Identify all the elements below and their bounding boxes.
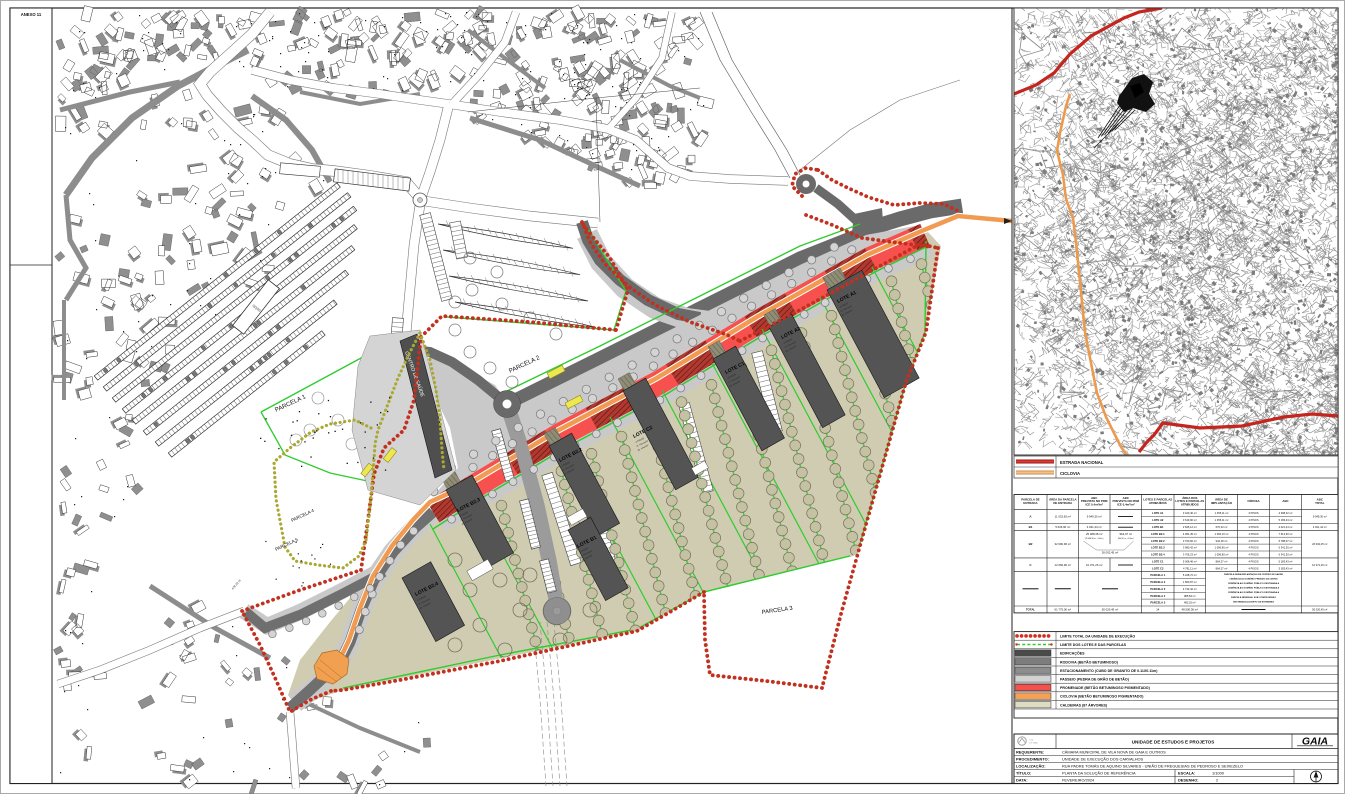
- svg-text:14: 14: [1156, 608, 1160, 612]
- svg-text:LOTE A1: LOTE A1: [1152, 511, 1164, 515]
- svg-text:61 775,00 m²: 61 775,00 m²: [1055, 608, 1072, 612]
- svg-text:482,02 m²: 482,02 m²: [1184, 601, 1196, 605]
- svg-text:2: 2: [1216, 778, 1218, 783]
- svg-text:LOTE C1: LOTE C1: [1152, 559, 1164, 563]
- svg-text:4 PISOS: 4 PISOS: [1248, 525, 1258, 529]
- svg-text:4 PISOS: 4 PISOS: [1248, 559, 1258, 563]
- svg-text:1 455,11 m²: 1 455,11 m²: [1215, 511, 1229, 515]
- svg-text:10 371,26 m²: 10 371,26 m²: [1312, 563, 1327, 567]
- svg-text:4 398,32 m²: 4 398,32 m²: [1279, 511, 1293, 515]
- svg-text:ENTRADA: ENTRADA: [1023, 501, 1038, 505]
- svg-text:EDIFICAÇÕES: EDIFICAÇÕES: [1060, 651, 1085, 656]
- svg-text:LOTE B2.4: LOTE B2.4: [1151, 553, 1165, 557]
- svg-text:DE ENTRADA: DE ENTRADA: [1053, 501, 1073, 505]
- svg-text:25 488,38 m²: 25 488,38 m²: [1086, 532, 1103, 536]
- svg-text:LOTE B1: LOTE B1: [1152, 525, 1164, 529]
- svg-text:26 002,45 m²: 26 002,45 m²: [1312, 542, 1327, 546]
- svg-text:C.M.: C.M.: [1029, 740, 1034, 742]
- svg-text:5 788,07 m²: 5 788,07 m²: [1279, 539, 1293, 543]
- svg-text:6 341,30 m²: 6 341,30 m²: [1279, 553, 1293, 557]
- svg-text:1 455,11 m²: 1 455,11 m²: [1215, 518, 1229, 522]
- svg-text:50 020,45 m²: 50 020,45 m²: [1312, 608, 1327, 612]
- svg-text:10 371,26 m²: 10 371,26 m²: [1086, 563, 1103, 567]
- svg-text:3 706,23 m²: 3 706,23 m²: [1183, 553, 1197, 557]
- svg-text:4 PISOS: 4 PISOS: [1248, 539, 1258, 543]
- svg-text:1 266,10 m²: 1 266,10 m²: [1215, 532, 1229, 536]
- svg-text:5 183,43 m²: 5 183,43 m²: [1279, 566, 1293, 570]
- svg-text:CALDEIRAS (87 ÁRVORES): CALDEIRAS (87 ÁRVORES): [1060, 702, 1108, 707]
- svg-text:FEVEREIRO/2024: FEVEREIRO/2024: [1062, 778, 1095, 783]
- svg-text:4 021,44 m²: 4 021,44 m²: [1313, 525, 1327, 529]
- svg-text:4 PISOS: 4 PISOS: [1248, 532, 1258, 536]
- svg-text:3 420,40 m²: 3 420,40 m²: [1183, 511, 1197, 515]
- svg-text:(25 488,38 m² +1,8/m²): (25 488,38 m² +1,8/m²): [1085, 537, 1104, 540]
- svg-text:5 183,44 m²: 5 183,44 m²: [1279, 518, 1293, 522]
- svg-text:670,23 m²: 670,23 m²: [1216, 525, 1228, 529]
- svg-text:ESTRADA NACIONAL: ESTRADA NACIONAL: [1060, 460, 1104, 465]
- svg-text:PARCELA 2: PARCELA 2: [1150, 580, 1165, 584]
- svg-text:48 500,36 m²: 48 500,36 m²: [1182, 608, 1199, 612]
- svg-text:4 PISOS: 4 PISOS: [1248, 546, 1258, 550]
- svg-text:CEDÊNCIA AO DOMÍNIO PÚBLICO DE: CEDÊNCIA AO DOMÍNIO PÚBLICO DESTINADA A: [1228, 591, 1280, 594]
- svg-text:DESENHO:: DESENHO:: [1178, 778, 1199, 783]
- svg-text:944,18 m²: 944,18 m²: [1216, 539, 1228, 543]
- svg-text:DESTINADA A ACERTO DE ESTREMAS: DESTINADA A ACERTO DE ESTREMAS: [1233, 600, 1274, 603]
- svg-text:9 949,30 m²: 9 949,30 m²: [1313, 515, 1327, 519]
- svg-text:PASSEIO (PEDRA DE GRÃO DE BETÃ: PASSEIO (PEDRA DE GRÃO DE BETÃO): [1060, 677, 1130, 682]
- svg-text:ANEXO 11: ANEXO 11: [21, 12, 42, 17]
- svg-text:4 742,42 m²: 4 742,42 m²: [1183, 587, 1197, 591]
- svg-text:LIMITE DOS LOTES E DAS PARCELA: LIMITE DOS LOTES E DAS PARCELAS: [1060, 643, 1127, 647]
- svg-text:4 781,11 m²: 4 781,11 m²: [1183, 566, 1197, 570]
- svg-text:ESCALA:: ESCALA:: [1178, 771, 1195, 776]
- svg-text:PROMENADE (BETÃO BETUMINOSO PI: PROMENADE (BETÃO BETUMINOSO PIGMENTADO): [1060, 685, 1151, 690]
- svg-text:B1: B1: [1029, 525, 1033, 529]
- svg-text:TOTAL: TOTAL: [1026, 608, 1036, 612]
- svg-text:LIMITE TOTAL DA UNIDADE DE EXE: LIMITE TOTAL DA UNIDADE DE EXECUÇÃO: [1060, 634, 1135, 639]
- svg-text:12 066,96 m²: 12 066,96 m²: [1055, 563, 1072, 567]
- svg-text:PARCELA RESIDUAL SOB COMPROMIS: PARCELA RESIDUAL SOB COMPROMISSO: [1231, 596, 1276, 599]
- svg-text:LOTE C2: LOTE C2: [1152, 566, 1164, 570]
- svg-text:DATA:: DATA:: [1016, 778, 1028, 783]
- svg-text:ICE 0,4m²/m²: ICE 0,4m²/m²: [1085, 503, 1103, 507]
- svg-text:CEDÊNCIA AO DOMÍNIO PRIVADO DA: CEDÊNCIA AO DOMÍNIO PRIVADO DA CMVNG: [1229, 577, 1278, 580]
- svg-text:5 026,90 m²: 5 026,90 m²: [1055, 525, 1070, 529]
- svg-text:CICLOVIA (BETÃO BETUMINOSO PIG: CICLOVIA (BETÃO BETUMINOSO PIGMENTADO): [1060, 694, 1144, 699]
- svg-text:UNIDADE DE EXECUÇÃO DOS CARVAL: UNIDADE DE EXECUÇÃO DOS CARVALHOS: [1062, 757, 1144, 762]
- svg-text:5 328,72 m²: 5 328,72 m²: [1183, 573, 1197, 577]
- svg-text:CEDÊNCIA AO DOMÍNIO PÚBLICO DE: CEDÊNCIA AO DOMÍNIO PÚBLICO DESTINADA A: [1228, 582, 1280, 585]
- svg-text:7 614,60 m²: 7 614,60 m²: [1279, 532, 1293, 536]
- svg-text:4 021,44 m²: 4 021,44 m²: [1087, 525, 1102, 529]
- svg-text:CEDÊNCIA AO DOMÍNIO PÚBLICO DE: CEDÊNCIA AO DOMÍNIO PÚBLICO DESTINADA A: [1228, 587, 1280, 590]
- svg-text:6 341,30 m²: 6 341,30 m²: [1279, 546, 1293, 550]
- svg-text:4 021,44 m²: 4 021,44 m²: [1279, 525, 1293, 529]
- svg-text:32 690,96 m²: 32 690,96 m²: [1055, 542, 1072, 546]
- svg-text:2 845,12 m²: 2 845,12 m²: [1183, 525, 1197, 529]
- svg-text:LOTE B2.3: LOTE B2.3: [1151, 546, 1165, 550]
- svg-text:CÉRCEA: CÉRCEA: [1247, 498, 1260, 503]
- svg-text:5 183,43 m²: 5 183,43 m²: [1279, 559, 1293, 563]
- svg-text:ATRIBUÍDOS: ATRIBUÍDOS: [1181, 502, 1199, 507]
- svg-text:CICLOVIA: CICLOVIA: [1060, 471, 1080, 476]
- svg-text:PROCEDIMENTO:: PROCEDIMENTO:: [1016, 757, 1049, 762]
- svg-text:3 PISOS: 3 PISOS: [1248, 511, 1258, 515]
- svg-text:ESTACIONAMENTO (CUBO DE GRANIT: ESTACIONAMENTO (CUBO DE GRANITO DE 0.11X…: [1060, 669, 1158, 673]
- svg-text:964,07 m²: 964,07 m²: [1120, 532, 1133, 536]
- svg-text:50 020,45 m²: 50 020,45 m²: [1102, 608, 1119, 612]
- svg-text:REQUERENTE:: REQUERENTE:: [1016, 750, 1044, 755]
- svg-text:5 008,46 m²: 5 008,46 m²: [1183, 559, 1197, 563]
- svg-text:PARCELA PARA IMPLANTAÇÃO DE CE: PARCELA PARA IMPLANTAÇÃO DE CENTRO DE SA…: [1224, 573, 1283, 576]
- svg-text:CÂMARA MUNICIPAL DE VILA NOVA: CÂMARA MUNICIPAL DE VILA NOVA DE GAIA E …: [1062, 750, 1166, 755]
- svg-text:TOTAL: TOTAL: [1315, 501, 1325, 505]
- svg-text:RUA PADRE TOMÁS DE AQUINO SILV: RUA PADRE TOMÁS DE AQUINO SILVARES - UNI…: [1062, 764, 1243, 769]
- svg-text:4 PISOS: 4 PISOS: [1248, 553, 1258, 557]
- svg-text:9 949,30 m²: 9 949,30 m²: [1087, 515, 1102, 519]
- svg-text:864,27 m²: 864,27 m²: [1216, 559, 1228, 563]
- svg-text:ICE 0,4m²/m²: ICE 0,4m²/m²: [1117, 503, 1135, 507]
- svg-text:3 700,60 m²: 3 700,60 m²: [1183, 539, 1197, 543]
- svg-text:B2: B2: [1029, 542, 1033, 546]
- svg-text:V.N.GAIA: V.N.GAIA: [1029, 742, 1038, 745]
- svg-text:LOCALIZAÇÃO:: LOCALIZAÇÃO:: [1016, 764, 1046, 769]
- svg-text:1 860,87 m²: 1 860,87 m²: [1183, 580, 1197, 584]
- svg-text:3 619,90 m²: 3 619,90 m²: [1183, 518, 1197, 522]
- svg-text:4 381,45 m²: 4 381,45 m²: [1183, 532, 1197, 536]
- svg-text:IMPLANTAÇÃO: IMPLANTAÇÃO: [1211, 500, 1233, 505]
- svg-text:(964,07 m² +1,8/m²): (964,07 m² +1,8/m²): [1118, 537, 1134, 540]
- svg-text:PARCELA 5: PARCELA 5: [1150, 601, 1165, 605]
- svg-text:3 980,42 m²: 3 980,42 m²: [1183, 546, 1197, 550]
- svg-text:4 PISOS: 4 PISOS: [1248, 518, 1258, 522]
- svg-text:1 096,80 m²: 1 096,80 m²: [1215, 546, 1229, 550]
- svg-text:PLANTA DA SOLUÇÃO DE REFERÊNCI: PLANTA DA SOLUÇÃO DE REFERÊNCIA: [1062, 771, 1136, 776]
- svg-text:1 096,80 m²: 1 096,80 m²: [1215, 553, 1229, 557]
- svg-text:LOTE B2.2: LOTE B2.2: [1151, 539, 1165, 543]
- svg-text:864,27 m²: 864,27 m²: [1216, 566, 1228, 570]
- svg-text:PARCELA 3: PARCELA 3: [1150, 587, 1165, 591]
- svg-text:PARCELA 4: PARCELA 4: [1150, 594, 1165, 598]
- svg-text:ATRIBUÍDOS: ATRIBUÍDOS: [1149, 500, 1167, 505]
- svg-text:11 032,65 m²: 11 032,65 m²: [1055, 515, 1071, 519]
- svg-text:LOTE B2.1: LOTE B2.1: [1151, 532, 1165, 536]
- svg-text:ABC: ABC: [1282, 499, 1289, 503]
- svg-text:RODOVIA (BETÃO BETUMINOSO): RODOVIA (BETÃO BETUMINOSO): [1060, 659, 1119, 664]
- svg-text:985,84 m²: 985,84 m²: [1184, 594, 1196, 598]
- svg-text:TÍTULO:: TÍTULO:: [1016, 771, 1031, 776]
- svg-text:PARCELA 1: PARCELA 1: [1150, 573, 1165, 577]
- svg-text:UNIDADE DE ESTUDOS E PROJETOS: UNIDADE DE ESTUDOS E PROJETOS: [1132, 739, 1215, 744]
- svg-text:26 002,45 m²: 26 002,45 m²: [1102, 551, 1119, 555]
- svg-text:4 PISOS: 4 PISOS: [1248, 566, 1258, 570]
- svg-text:1/1000: 1/1000: [1212, 771, 1225, 776]
- svg-text:LOTE A2: LOTE A2: [1152, 518, 1164, 522]
